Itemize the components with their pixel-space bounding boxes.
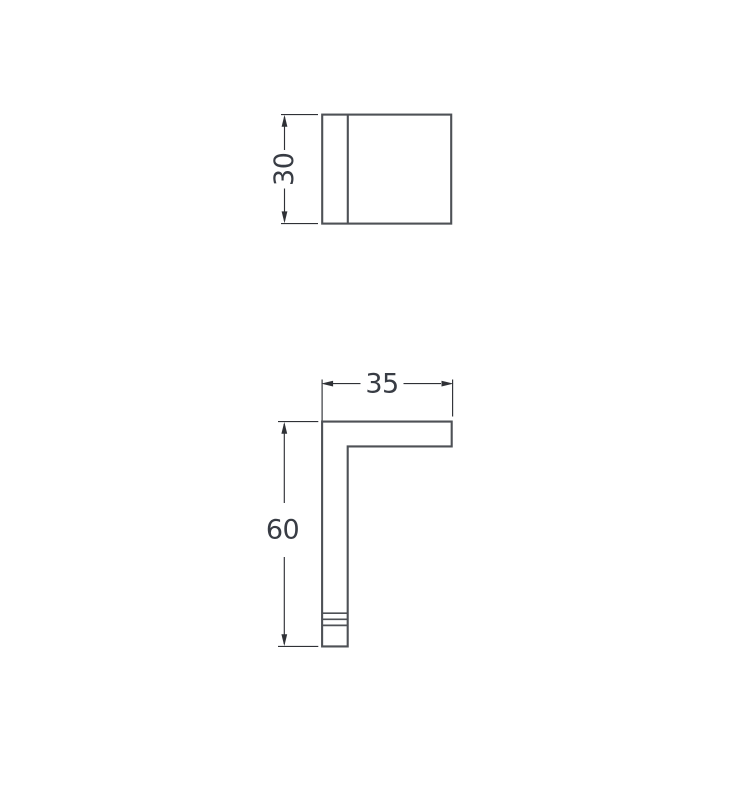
dimension-label-60: 60: [266, 515, 299, 546]
dimension-60: 60: [266, 422, 318, 647]
front-view: 30: [269, 115, 451, 224]
drawing-page: 30 35: [0, 0, 733, 800]
dimension-30: 30: [269, 115, 318, 224]
arrowhead-down-icon: [281, 634, 287, 646]
arrowhead-up-icon: [281, 422, 287, 434]
dimension-label-30: 30: [269, 153, 300, 186]
front-view-part-outline: [322, 115, 451, 224]
side-view: 35 60: [266, 368, 454, 646]
dimension-label-35: 35: [365, 368, 398, 399]
dimension-35: 35: [321, 368, 453, 420]
technical-drawing-canvas: 30 35: [0, 0, 733, 800]
arrowhead-up-icon: [282, 115, 288, 127]
arrowhead-left-icon: [321, 381, 333, 387]
arrowhead-down-icon: [282, 211, 288, 223]
arrowhead-right-icon: [442, 381, 454, 387]
